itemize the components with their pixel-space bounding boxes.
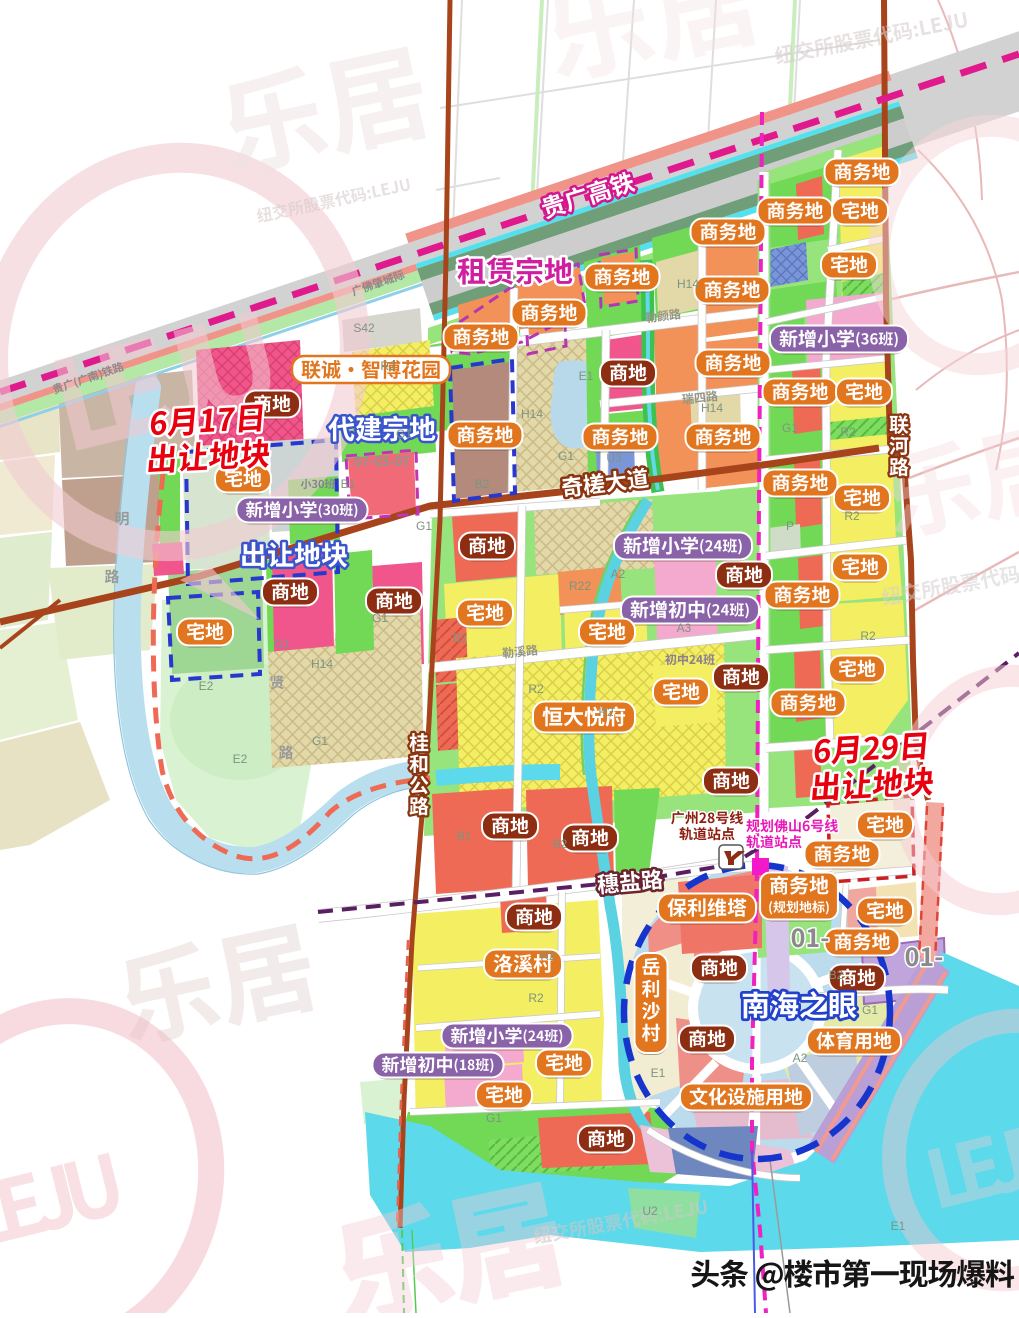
svg-text:B1: B1 [341,477,356,491]
svg-text:G1: G1 [274,637,290,651]
svg-text:G1: G1 [486,1111,502,1125]
svg-text:B2: B2 [553,837,568,851]
svg-text:R2: R2 [528,991,544,1005]
svg-text:B1: B1 [457,829,472,843]
svg-text:R2: R2 [840,425,856,439]
svg-text:R2: R2 [844,509,860,523]
svg-text:H14: H14 [311,657,333,671]
svg-text:E2: E2 [199,679,214,693]
svg-text:S42: S42 [353,321,375,335]
svg-text:A3: A3 [677,621,692,635]
svg-text:H14: H14 [521,407,543,421]
svg-text:U2: U2 [642,1204,658,1218]
svg-text:B2: B2 [475,477,490,491]
svg-text:G1: G1 [396,427,412,441]
svg-text:P: P [786,519,794,533]
svg-text:G1: G1 [416,519,432,533]
svg-text:U3: U3 [606,451,622,465]
svg-text:H14: H14 [677,277,699,291]
svg-text:G1: G1 [312,734,328,748]
svg-text:B2: B2 [829,968,844,982]
svg-text:R2: R2 [860,629,876,643]
svg-text:G1: G1 [862,1003,878,1017]
svg-text:G1: G1 [372,611,388,625]
svg-text:R2: R2 [598,705,614,719]
svg-text:A2: A2 [793,1051,808,1065]
svg-text:R2: R2 [380,359,396,373]
svg-text:R2: R2 [528,682,544,696]
svg-text:A2: A2 [611,567,626,581]
svg-text:R2: R2 [540,949,556,963]
svg-text:R22: R22 [569,579,591,593]
svg-text:E1: E1 [651,1066,666,1080]
svg-text:H14: H14 [701,401,723,415]
svg-text:G1: G1 [558,449,574,463]
svg-text:G1: G1 [782,421,798,435]
svg-text:B1: B1 [453,631,468,645]
svg-text:E1: E1 [579,369,594,383]
svg-text:E1: E1 [891,1219,906,1233]
svg-text:E2: E2 [233,752,248,766]
